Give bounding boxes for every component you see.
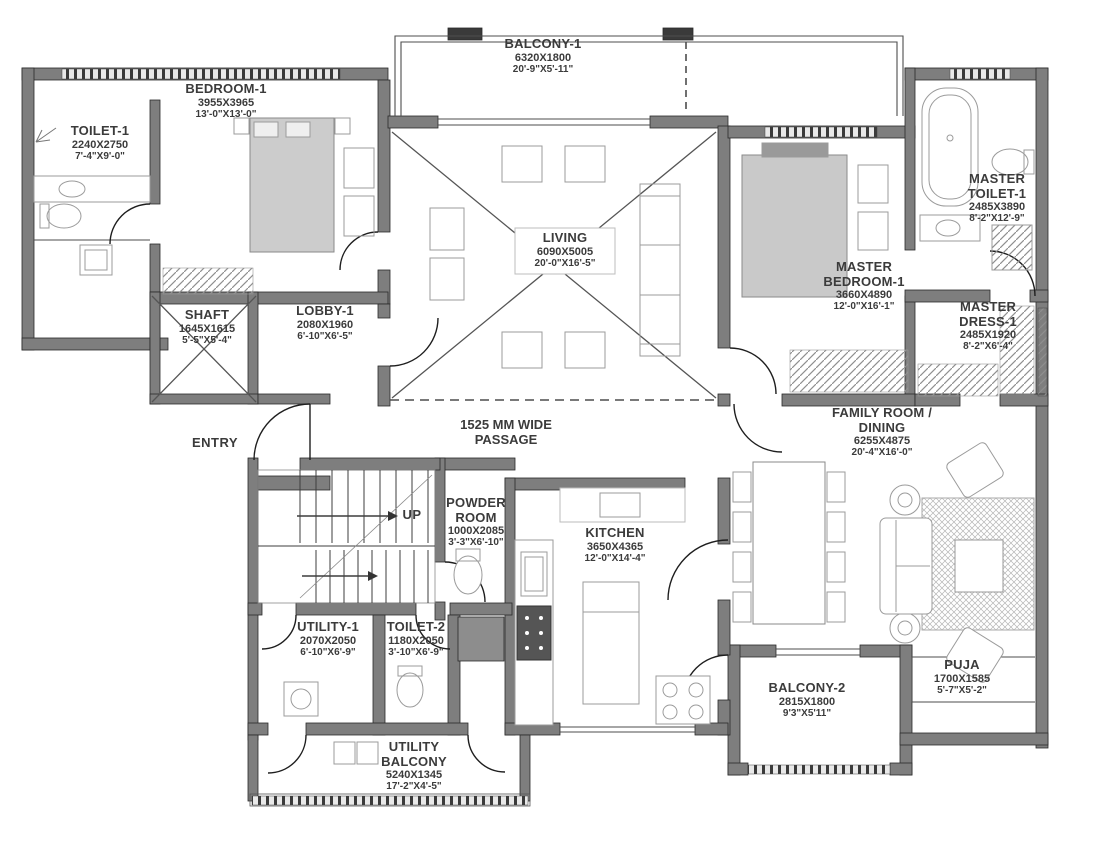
passage-label: 1525 MM WIDE PASSAGE xyxy=(446,418,566,447)
room-label-master-toilet1: MASTER TOILET-1 2485X3890 8'-2"X12'-9" xyxy=(954,172,1040,225)
room-name: PUJA xyxy=(934,658,990,673)
room-name: FAMILY ROOM / DINING xyxy=(818,406,946,435)
room-name: TOILET-2 xyxy=(387,620,445,635)
room-dim-mm: 1700X1585 xyxy=(934,673,990,685)
room-label-utility-balcony: UTILITY BALCONY 5240X1345 17'-2"X4'-5" xyxy=(369,740,459,793)
room-dim-mm: 3660X4890 xyxy=(808,289,920,301)
up-label: UP xyxy=(402,507,421,522)
room-dim-mm: 2070X2050 xyxy=(297,635,359,647)
room-label-shaft: SHAFT 1645X1615 5'-5"X5'-4" xyxy=(179,308,235,346)
room-dim-ft: 8'-2"X6'-4" xyxy=(943,341,1033,352)
room-dim-ft: 6'-10"X6'-5" xyxy=(296,331,354,342)
room-name: UTILITY BALCONY xyxy=(369,740,459,769)
room-dim-ft: 7'-4"X9'-0" xyxy=(71,151,129,162)
room-dim-mm: 3650X4365 xyxy=(585,541,646,553)
dining-table xyxy=(733,462,845,624)
utility1-fixtures xyxy=(284,682,318,716)
room-label-lobby1: LOBBY-1 2080X1960 6'-10"X6'-5" xyxy=(296,304,354,342)
room-name: UTILITY-1 xyxy=(297,620,359,635)
room-label-master-bedroom1: MASTER BEDROOM-1 3660X4890 12'-0"X16'-1" xyxy=(808,260,920,313)
room-label-master-dress1: MASTER DRESS-1 2485X1920 8'-2"X6'-4" xyxy=(943,300,1033,353)
room-dim-mm: 2240X2750 xyxy=(71,139,129,151)
room-dim-ft: 3'-10"X6'-9" xyxy=(387,647,445,658)
room-name: SHAFT xyxy=(179,308,235,323)
room-dim-ft: 3'-3"X6'-10" xyxy=(440,537,512,548)
room-dim-mm: 6255X4875 xyxy=(818,435,946,447)
room-label-puja: PUJA 1700X1585 5'-7"X5'-2" xyxy=(934,658,990,696)
room-name: BEDROOM-1 xyxy=(185,82,266,97)
room-dim-ft: 20'-0"X16'-5" xyxy=(535,258,596,269)
room-dim-ft: 8'-2"X12'-9" xyxy=(954,213,1040,224)
room-dim-ft: 9'3"X5'11" xyxy=(769,708,846,719)
room-dim-mm: 2080X1960 xyxy=(296,319,354,331)
room-label-balcony2: BALCONY-2 2815X1800 9'3"X5'11" xyxy=(769,681,846,719)
room-label-powder-room: POWDER ROOM 1000X2085 3'-3"X6'-10" xyxy=(440,496,512,549)
room-dim-mm: 2485X3890 xyxy=(954,201,1040,213)
room-name: TOILET-1 xyxy=(71,124,129,139)
room-dim-mm: 2485X1920 xyxy=(943,329,1033,341)
powder-fixtures xyxy=(454,549,482,594)
toilet2-fixtures xyxy=(397,666,423,707)
room-label-bedroom1: BEDROOM-1 3955X3965 13'-0"X13'-0" xyxy=(185,82,266,120)
room-dim-ft: 13'-0"X13'-0" xyxy=(185,109,266,120)
room-name: MASTER TOILET-1 xyxy=(954,172,1040,201)
room-dim-ft: 20'-4"X16'-0" xyxy=(818,447,946,458)
room-name: KITCHEN xyxy=(585,526,646,541)
room-dim-mm: 2815X1800 xyxy=(769,696,846,708)
room-dim-ft: 12'-0"X16'-1" xyxy=(808,301,920,312)
room-label-utility1: UTILITY-1 2070X2050 6'-10"X6'-9" xyxy=(297,620,359,658)
room-dim-ft: 6'-10"X6'-9" xyxy=(297,647,359,658)
room-dim-mm: 6090X5005 xyxy=(535,246,596,258)
room-label-toilet1: TOILET-1 2240X2750 7'-4"X9'-0" xyxy=(71,124,129,162)
room-dim-mm: 1000X2085 xyxy=(440,525,512,537)
room-dim-ft: 5'-5"X5'-4" xyxy=(179,335,235,346)
room-name: BALCONY-1 xyxy=(505,37,582,52)
floor-plan: BALCONY-1 6320X1800 20'-9"X5'-11" BEDROO… xyxy=(0,0,1093,843)
room-label-balcony1: BALCONY-1 6320X1800 20'-9"X5'-11" xyxy=(505,37,582,75)
room-label-living: LIVING 6090X5005 20'-0"X16'-5" xyxy=(535,231,596,269)
room-dim-mm: 1645X1615 xyxy=(179,323,235,335)
room-label-kitchen: KITCHEN 3650X4365 12'-0"X14'-4" xyxy=(585,526,646,564)
room-dim-mm: 6320X1800 xyxy=(505,52,582,64)
room-name: LOBBY-1 xyxy=(296,304,354,319)
room-name: LIVING xyxy=(535,231,596,246)
room-dim-ft: 20'-9"X5'-11" xyxy=(505,64,582,75)
room-dim-ft: 5'-7"X5'-2" xyxy=(934,685,990,696)
room-dim-ft: 17'-2"X4'-5" xyxy=(369,781,459,792)
room-dim-mm: 5240X1345 xyxy=(369,769,459,781)
room-dim-mm: 1180X2050 xyxy=(387,635,445,647)
room-dim-mm: 3955X3965 xyxy=(185,97,266,109)
bed-bedroom1 xyxy=(234,118,374,252)
kitchen-fixtures xyxy=(515,488,710,725)
entry-label: ENTRY xyxy=(192,435,238,450)
room-name: MASTER BEDROOM-1 xyxy=(808,260,920,289)
room-dim-ft: 12'-0"X14'-4" xyxy=(585,553,646,564)
room-label-family-dining: FAMILY ROOM / DINING 6255X4875 20'-4"X16… xyxy=(818,406,946,459)
room-name: BALCONY-2 xyxy=(769,681,846,696)
room-label-toilet2: TOILET-2 1180X2050 3'-10"X6'-9" xyxy=(387,620,445,658)
room-name: MASTER DRESS-1 xyxy=(943,300,1033,329)
room-name: POWDER ROOM xyxy=(440,496,512,525)
